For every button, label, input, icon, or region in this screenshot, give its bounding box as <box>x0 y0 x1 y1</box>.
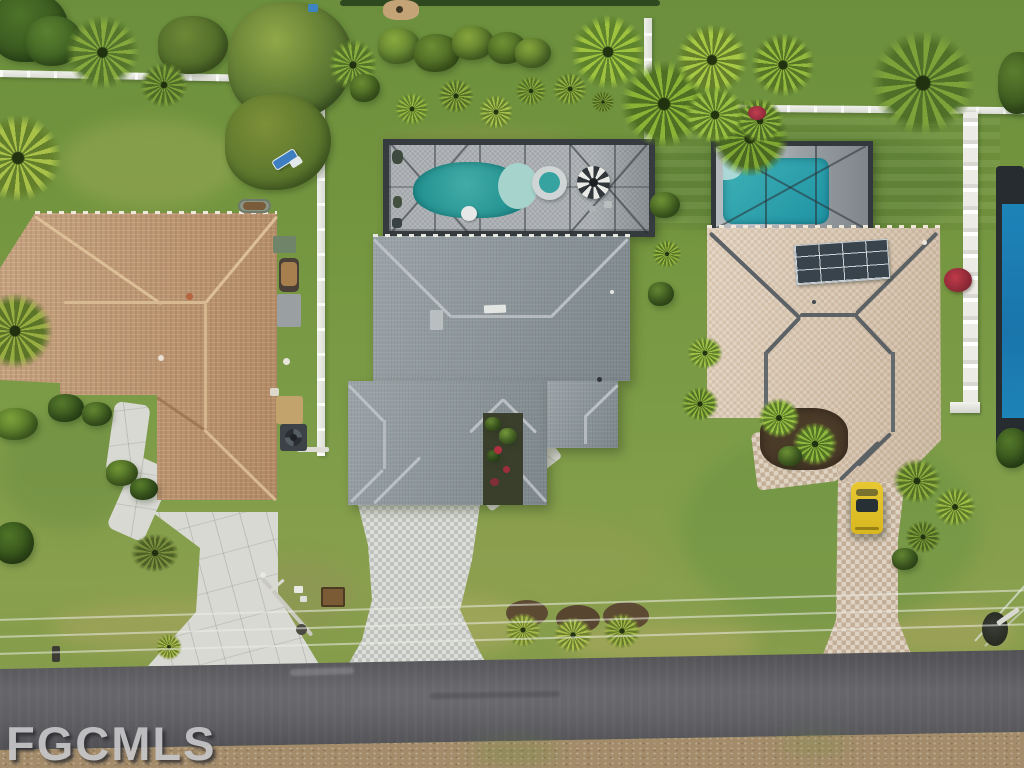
palm-tree <box>511 72 551 110</box>
grill-cover <box>281 262 297 286</box>
pool-spa-water <box>539 172 560 193</box>
agave-plant <box>124 528 186 578</box>
right-fence-elbow <box>950 402 980 413</box>
patio-chair <box>604 201 612 208</box>
center-roof-gutter <box>373 234 630 237</box>
pole-insulator <box>260 572 266 578</box>
roof-vent <box>812 300 816 304</box>
right-side-fence <box>963 112 978 412</box>
center-house-roof-wing <box>547 381 618 448</box>
roof-ridge-dark <box>891 352 895 432</box>
utility-mat <box>276 396 303 424</box>
planter-soil <box>243 202 266 210</box>
roof-ridge <box>451 315 552 318</box>
garden-box <box>273 236 296 253</box>
sand-patch-rock <box>396 6 403 13</box>
patio-chair <box>589 206 596 212</box>
palm-tree <box>133 56 195 114</box>
ac-fan <box>285 429 302 446</box>
utility-pole-top <box>296 624 307 635</box>
right-roof-gutter <box>707 225 940 228</box>
car-windshield <box>856 499 878 512</box>
utility-pad <box>277 294 301 327</box>
roof-panel <box>430 310 443 330</box>
yard-sign <box>294 586 303 593</box>
shrub <box>515 38 551 68</box>
tree-canopy <box>225 94 331 190</box>
palm-tree <box>682 332 728 374</box>
yard-item <box>283 358 290 365</box>
shrub <box>998 52 1024 114</box>
palm-tree <box>730 92 790 150</box>
pool-table <box>461 206 477 221</box>
palm-tree <box>433 74 479 118</box>
palm-tree <box>676 382 724 426</box>
roof-vent <box>610 290 614 294</box>
mailbox-post <box>52 646 60 662</box>
palm-tree <box>598 608 646 654</box>
screen-bar <box>815 143 817 231</box>
shrub <box>996 428 1024 468</box>
roof-ridge <box>204 303 207 429</box>
aerial-photo: FGCMLS <box>0 0 1024 768</box>
palm-tree <box>648 236 686 272</box>
flower-bush-red <box>748 106 766 120</box>
roof-ridge-dark <box>800 313 858 317</box>
roof-vent <box>484 305 506 314</box>
roof-vent <box>922 240 927 245</box>
roof-ridge <box>64 301 206 304</box>
shrub <box>0 522 34 564</box>
car-rear-window <box>856 489 878 496</box>
palm-tree <box>500 608 546 652</box>
palm-tree <box>856 16 990 150</box>
shrub <box>648 282 674 306</box>
lanai-furniture <box>392 218 402 228</box>
courtyard-flowers <box>494 446 502 454</box>
watermark: FGCMLS <box>6 716 216 768</box>
car-hood-line <box>855 527 879 530</box>
roof-ridge <box>584 416 587 444</box>
yard-sign <box>300 596 307 602</box>
lanai-plant <box>393 196 402 208</box>
roof-vent <box>158 355 164 361</box>
lawn-patch <box>60 118 240 208</box>
yard-item <box>270 388 279 396</box>
solar-panel-array <box>794 239 891 285</box>
shrub <box>350 74 380 102</box>
courtyard-flowers <box>503 466 510 473</box>
palm-tree <box>390 88 434 130</box>
roof-ridge <box>383 420 386 469</box>
blue-yard-item <box>308 4 318 12</box>
neighbor-blue-tarp <box>1002 204 1024 418</box>
shoulder-grass <box>470 744 560 762</box>
roof-vent <box>186 293 193 300</box>
utility-box <box>321 587 345 607</box>
lanai-plant <box>392 150 403 164</box>
palm-frond <box>0 102 74 214</box>
flower-bush-red <box>944 268 972 292</box>
patio-umbrella <box>577 166 610 199</box>
roof-vent <box>597 377 602 382</box>
courtyard-flowers <box>490 478 499 486</box>
shoulder-grass <box>780 738 850 752</box>
